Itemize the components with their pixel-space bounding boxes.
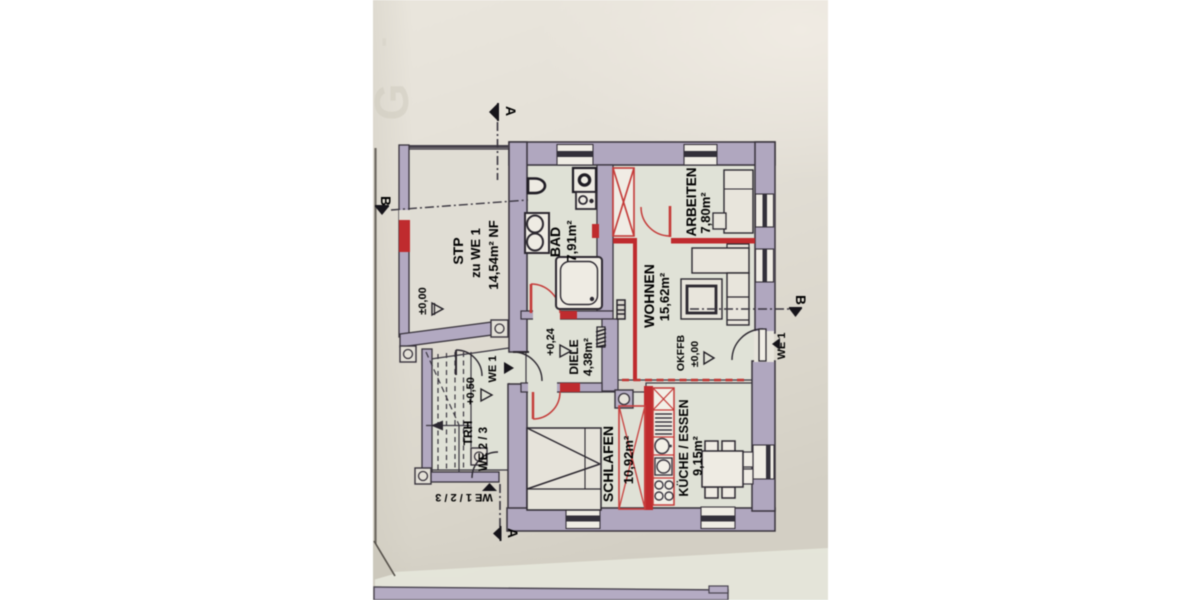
svg-text:9,15m²: 9,15m² (691, 436, 705, 476)
svg-text:-: - (366, 37, 399, 47)
svg-text:SCHLAFEN: SCHLAFEN (600, 426, 616, 502)
svg-text:WE 2 / 3: WE 2 / 3 (478, 427, 490, 471)
svg-text:B: B (793, 295, 808, 305)
svg-text:4,38m²: 4,38m² (581, 338, 595, 376)
svg-text:7,80m²: 7,80m² (698, 192, 713, 234)
svg-text:DIELE: DIELE (567, 339, 581, 374)
svg-text:+0,50: +0,50 (465, 377, 477, 405)
svg-text:+0,24: +0,24 (545, 327, 557, 356)
svg-text:B: B (378, 196, 393, 206)
svg-text:15,62m²: 15,62m² (657, 272, 672, 321)
svg-text:14,54m² NF: 14,54m² NF (486, 220, 501, 289)
svg-text:±0,00: ±0,00 (417, 287, 429, 314)
svg-text:STP: STP (450, 237, 466, 264)
svg-text:ARBEITEN: ARBEITEN (684, 167, 699, 236)
svg-text:WE 1: WE 1 (487, 356, 499, 383)
svg-text:TRH: TRH (461, 421, 475, 446)
svg-text:zu WE 1: zu WE 1 (468, 228, 483, 278)
svg-text:WE 1 / 2 / 3: WE 1 / 2 / 3 (435, 491, 492, 503)
svg-text:A: A (503, 106, 519, 116)
svg-text:KÜCHE / ESSEN: KÜCHE / ESSEN (676, 399, 691, 496)
svg-text:A: A (505, 528, 521, 538)
svg-text:10,92m²: 10,92m² (621, 435, 636, 484)
svg-text:G: G (366, 83, 419, 120)
svg-text:OKFFB: OKFFB (675, 335, 687, 372)
svg-text:BAD: BAD (547, 227, 563, 257)
svg-text:WOHNEN: WOHNEN (641, 264, 657, 328)
svg-text:7,91m²: 7,91m² (564, 220, 579, 262)
svg-text:±0,00: ±0,00 (689, 341, 701, 367)
